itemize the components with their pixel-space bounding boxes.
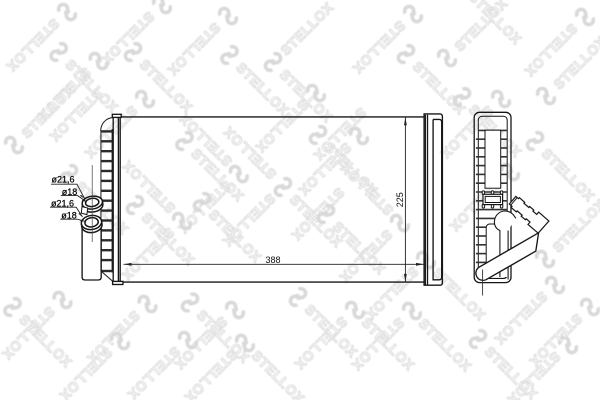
svg-text:388: 388: [266, 255, 281, 265]
svg-text:ø21,6: ø21,6: [52, 175, 75, 185]
svg-text:225: 225: [395, 192, 405, 207]
